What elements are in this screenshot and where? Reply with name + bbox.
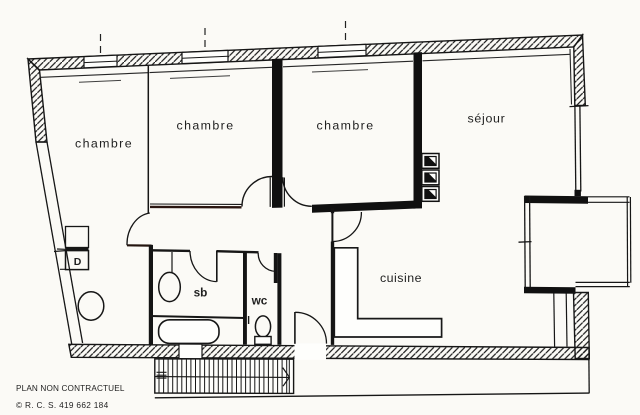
svg-text:PLAN NON CONTRACTUEL: PLAN NON CONTRACTUEL <box>16 384 125 393</box>
svg-text:séjour: séjour <box>468 112 506 126</box>
svg-text:© R. C. S. 419 662 184: © R. C. S. 419 662 184 <box>16 400 109 410</box>
svg-text:chambre: chambre <box>176 119 234 133</box>
svg-text:wc: wc <box>251 294 268 308</box>
svg-text:D: D <box>74 256 82 268</box>
svg-text:chambre: chambre <box>316 119 374 133</box>
svg-text:chambre: chambre <box>75 137 133 151</box>
svg-text:sb: sb <box>194 286 208 300</box>
svg-text:cuisine: cuisine <box>380 271 422 285</box>
